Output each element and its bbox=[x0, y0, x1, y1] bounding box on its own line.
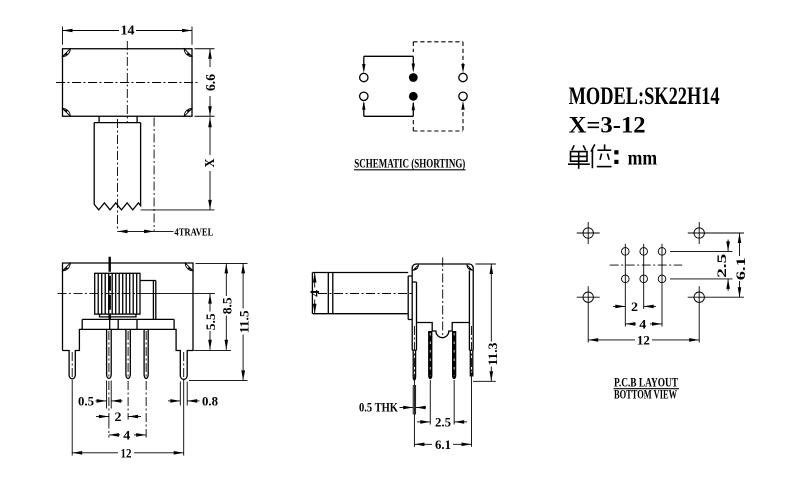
svg-text:4: 4 bbox=[308, 289, 322, 297]
svg-text:2.5: 2.5 bbox=[715, 254, 729, 278]
svg-text:2: 2 bbox=[631, 300, 638, 314]
svg-text:12: 12 bbox=[637, 333, 650, 347]
svg-text:MODEL:SK22H14: MODEL:SK22H14 bbox=[569, 83, 720, 110]
svg-text:11.3: 11.3 bbox=[486, 343, 500, 366]
svg-text:12: 12 bbox=[121, 446, 132, 460]
svg-text:X=3-12: X=3-12 bbox=[569, 113, 646, 138]
svg-text:X: X bbox=[202, 158, 217, 167]
svg-text:4: 4 bbox=[639, 317, 647, 331]
svg-text:2: 2 bbox=[115, 410, 122, 424]
svg-text:4TRAVEL: 4TRAVEL bbox=[174, 228, 213, 239]
svg-text:4: 4 bbox=[123, 428, 131, 442]
svg-text:0.5: 0.5 bbox=[78, 394, 94, 408]
svg-text:BOTTOM VIEW: BOTTOM VIEW bbox=[614, 388, 677, 402]
svg-text:14: 14 bbox=[121, 23, 135, 38]
svg-text:6.1: 6.1 bbox=[435, 438, 451, 452]
svg-text:0.8: 0.8 bbox=[202, 394, 218, 408]
svg-text:SCHEMATIC (SHORTING): SCHEMATIC (SHORTING) bbox=[354, 156, 465, 170]
svg-text:0.5 THK: 0.5 THK bbox=[359, 401, 398, 415]
svg-text:5.5: 5.5 bbox=[204, 313, 218, 330]
svg-text:6.1: 6.1 bbox=[734, 257, 748, 280]
svg-text:8.5: 8.5 bbox=[221, 297, 235, 314]
svg-text:11.5: 11.5 bbox=[238, 310, 252, 333]
svg-text:mm: mm bbox=[628, 146, 658, 170]
svg-text:2.5: 2.5 bbox=[435, 415, 451, 429]
svg-text:6.6: 6.6 bbox=[203, 74, 218, 91]
